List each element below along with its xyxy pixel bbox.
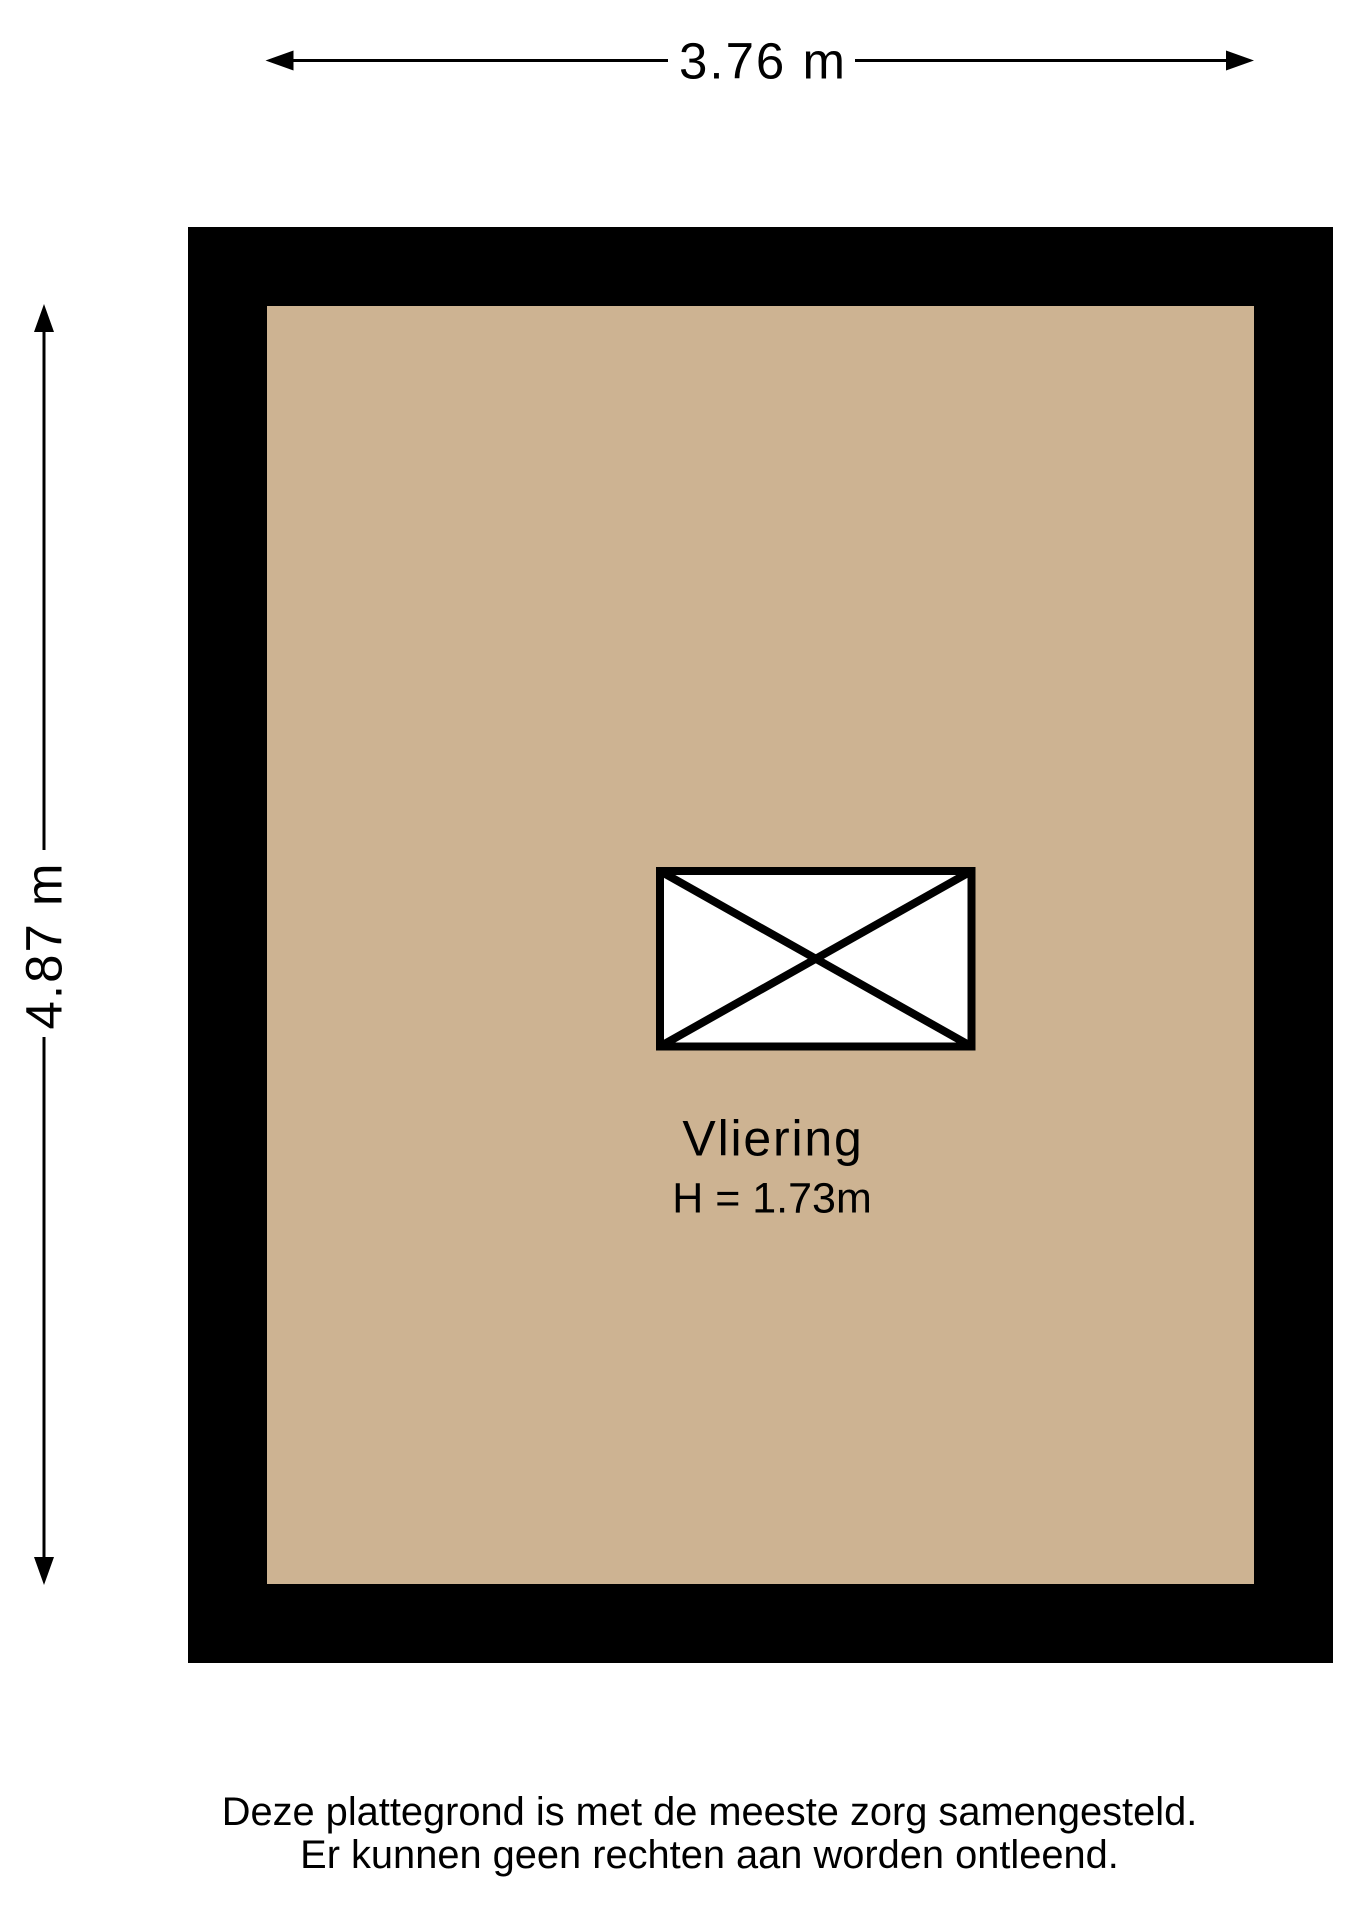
- svg-text:3.76 m: 3.76 m: [679, 33, 847, 90]
- svg-text:Vliering: Vliering: [682, 1111, 863, 1167]
- svg-text:H = 1.73m: H = 1.73m: [672, 1175, 872, 1223]
- svg-text:Er kunnen geen rechten aan wor: Er kunnen geen rechten aan worden ontlee…: [300, 1833, 1119, 1877]
- svg-text:Deze plattegrond is met de mee: Deze plattegrond is met de meeste zorg s…: [222, 1790, 1198, 1834]
- svg-text:4.87 m: 4.87 m: [16, 862, 73, 1030]
